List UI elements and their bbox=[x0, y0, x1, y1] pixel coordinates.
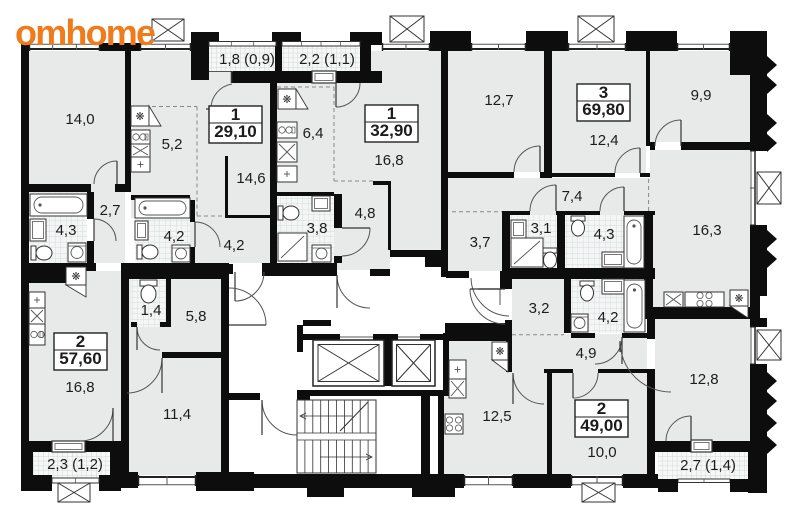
svg-text:4,2: 4,2 bbox=[224, 237, 245, 254]
svg-text:❋: ❋ bbox=[282, 94, 291, 106]
svg-text:❋: ❋ bbox=[135, 111, 144, 123]
svg-text:4,2: 4,2 bbox=[164, 228, 185, 245]
svg-text:6,4: 6,4 bbox=[303, 125, 324, 142]
svg-text:14,6: 14,6 bbox=[236, 170, 265, 187]
svg-text:2,7 (1,4): 2,7 (1,4) bbox=[680, 457, 736, 474]
svg-text:69,80: 69,80 bbox=[582, 100, 625, 119]
svg-text:7,4: 7,4 bbox=[562, 188, 583, 205]
svg-text:4,3: 4,3 bbox=[594, 226, 615, 243]
svg-text:9,9: 9,9 bbox=[691, 87, 712, 104]
svg-text:5,2: 5,2 bbox=[162, 136, 183, 153]
svg-text:12,7: 12,7 bbox=[484, 92, 513, 109]
svg-text:29,10: 29,10 bbox=[214, 122, 257, 141]
svg-text:1,4: 1,4 bbox=[141, 302, 162, 319]
svg-text:16,3: 16,3 bbox=[692, 222, 721, 239]
svg-text:57,60: 57,60 bbox=[59, 349, 102, 368]
svg-text:omhome: omhome bbox=[15, 12, 155, 53]
svg-text:1,8 (0,9): 1,8 (0,9) bbox=[219, 51, 275, 68]
svg-text:11,4: 11,4 bbox=[163, 406, 191, 423]
svg-text:2,7: 2,7 bbox=[100, 202, 121, 219]
svg-text:16,8: 16,8 bbox=[374, 152, 403, 169]
svg-text:14,0: 14,0 bbox=[65, 111, 94, 128]
svg-text:❋: ❋ bbox=[734, 293, 743, 305]
svg-text:10,0: 10,0 bbox=[587, 444, 616, 461]
svg-text:4,2: 4,2 bbox=[598, 309, 619, 326]
svg-text:4,3: 4,3 bbox=[56, 222, 77, 239]
svg-text:12,4: 12,4 bbox=[589, 132, 618, 149]
svg-text:2,3 (1,2): 2,3 (1,2) bbox=[47, 456, 103, 473]
svg-text:2,2 (1,1): 2,2 (1,1) bbox=[299, 51, 355, 68]
svg-text:16,8: 16,8 bbox=[65, 379, 94, 396]
svg-text:5,8: 5,8 bbox=[186, 308, 207, 325]
svg-text:❋: ❋ bbox=[495, 346, 504, 358]
svg-text:4,8: 4,8 bbox=[355, 205, 376, 222]
svg-text:3,1: 3,1 bbox=[531, 220, 552, 237]
svg-text:❋: ❋ bbox=[71, 271, 80, 283]
svg-text:12,8: 12,8 bbox=[689, 371, 718, 388]
svg-text:49,00: 49,00 bbox=[580, 416, 623, 435]
svg-text:3,2: 3,2 bbox=[529, 300, 550, 317]
svg-text:12,5: 12,5 bbox=[482, 408, 511, 425]
svg-text:3,7: 3,7 bbox=[470, 234, 491, 251]
svg-text:32,90: 32,90 bbox=[370, 121, 413, 140]
svg-text:4,9: 4,9 bbox=[576, 345, 597, 362]
svg-text:3,8: 3,8 bbox=[307, 220, 328, 237]
